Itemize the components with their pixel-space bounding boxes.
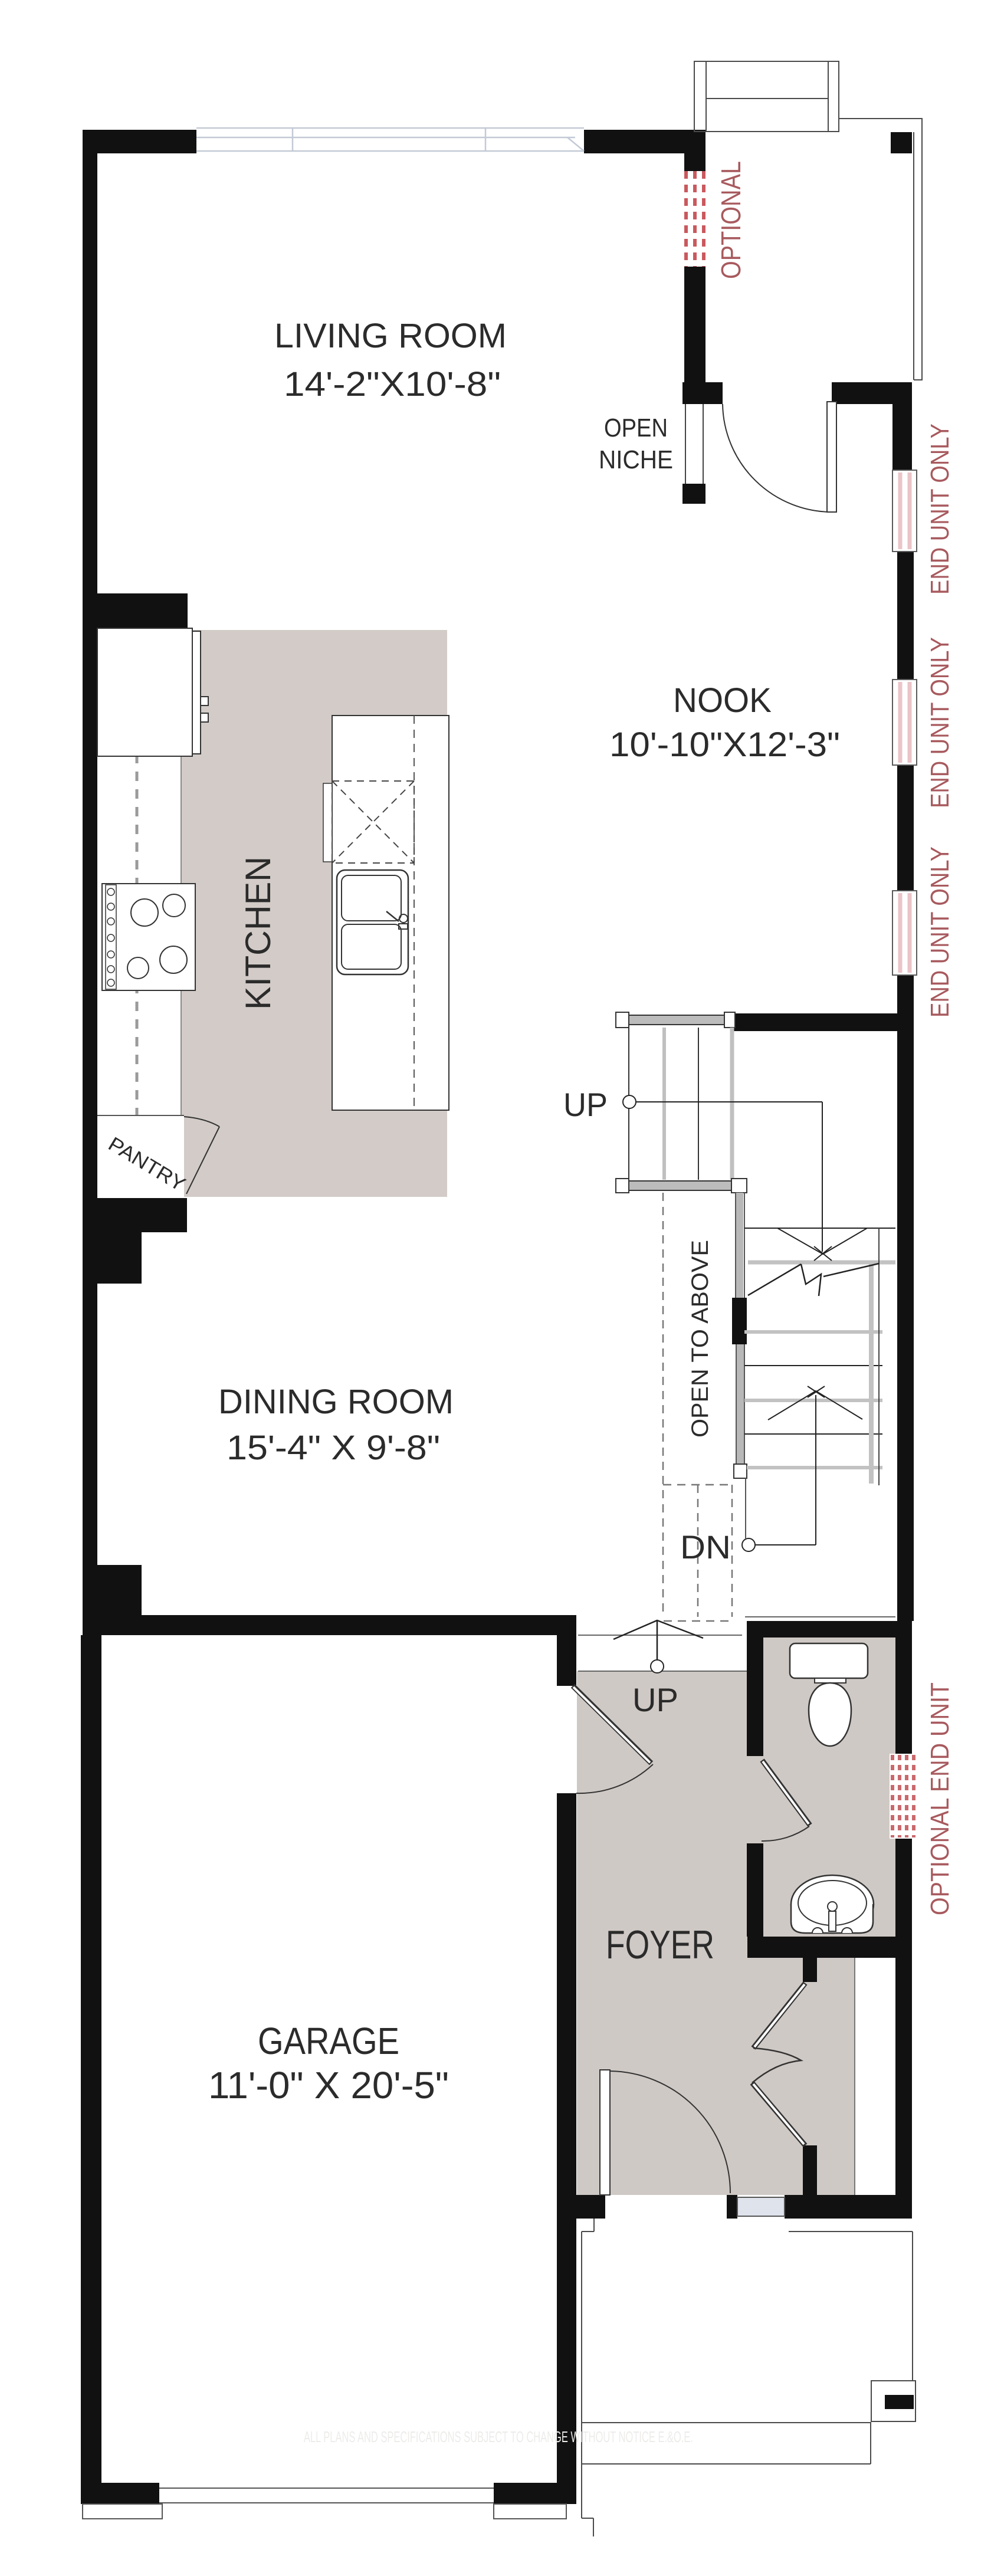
svg-text:15'-4" X 9'-8": 15'-4" X 9'-8" (227, 1429, 440, 1467)
svg-text:DINING ROOM: DINING ROOM (218, 1383, 454, 1421)
svg-text:FOYER: FOYER (606, 1922, 714, 1967)
svg-text:OPTIONAL END UNIT: OPTIONAL END UNIT (926, 1682, 954, 1915)
svg-text:END UNIT ONLY: END UNIT ONLY (926, 846, 954, 1018)
svg-text:UP: UP (563, 1086, 608, 1123)
svg-text:KITCHEN: KITCHEN (238, 857, 278, 1010)
svg-text:OPEN TO ABOVE: OPEN TO ABOVE (687, 1240, 713, 1438)
svg-text:OPTIONAL: OPTIONAL (716, 161, 746, 279)
svg-text:NICHE: NICHE (599, 445, 673, 474)
svg-text:OPEN: OPEN (604, 414, 668, 442)
svg-text:END UNIT ONLY: END UNIT ONLY (926, 637, 954, 808)
svg-text:LIVING ROOM: LIVING ROOM (274, 317, 507, 355)
svg-text:GARAGE: GARAGE (258, 2020, 399, 2062)
svg-text:11'-0" X 20'-5": 11'-0" X 20'-5" (208, 2064, 449, 2106)
svg-text:NOOK: NOOK (673, 681, 772, 720)
svg-text:ALL PLANS AND SPECIFICATIONS S: ALL PLANS AND SPECIFICATIONS SUBJECT TO … (304, 2428, 693, 2446)
svg-text:END UNIT ONLY: END UNIT ONLY (926, 424, 954, 595)
svg-text:14'-2"X10'-8": 14'-2"X10'-8" (284, 365, 501, 403)
svg-text:UP: UP (632, 1681, 678, 1718)
svg-text:DN: DN (680, 1528, 731, 1566)
svg-text:10'-10"X12'-3": 10'-10"X12'-3" (609, 726, 840, 764)
